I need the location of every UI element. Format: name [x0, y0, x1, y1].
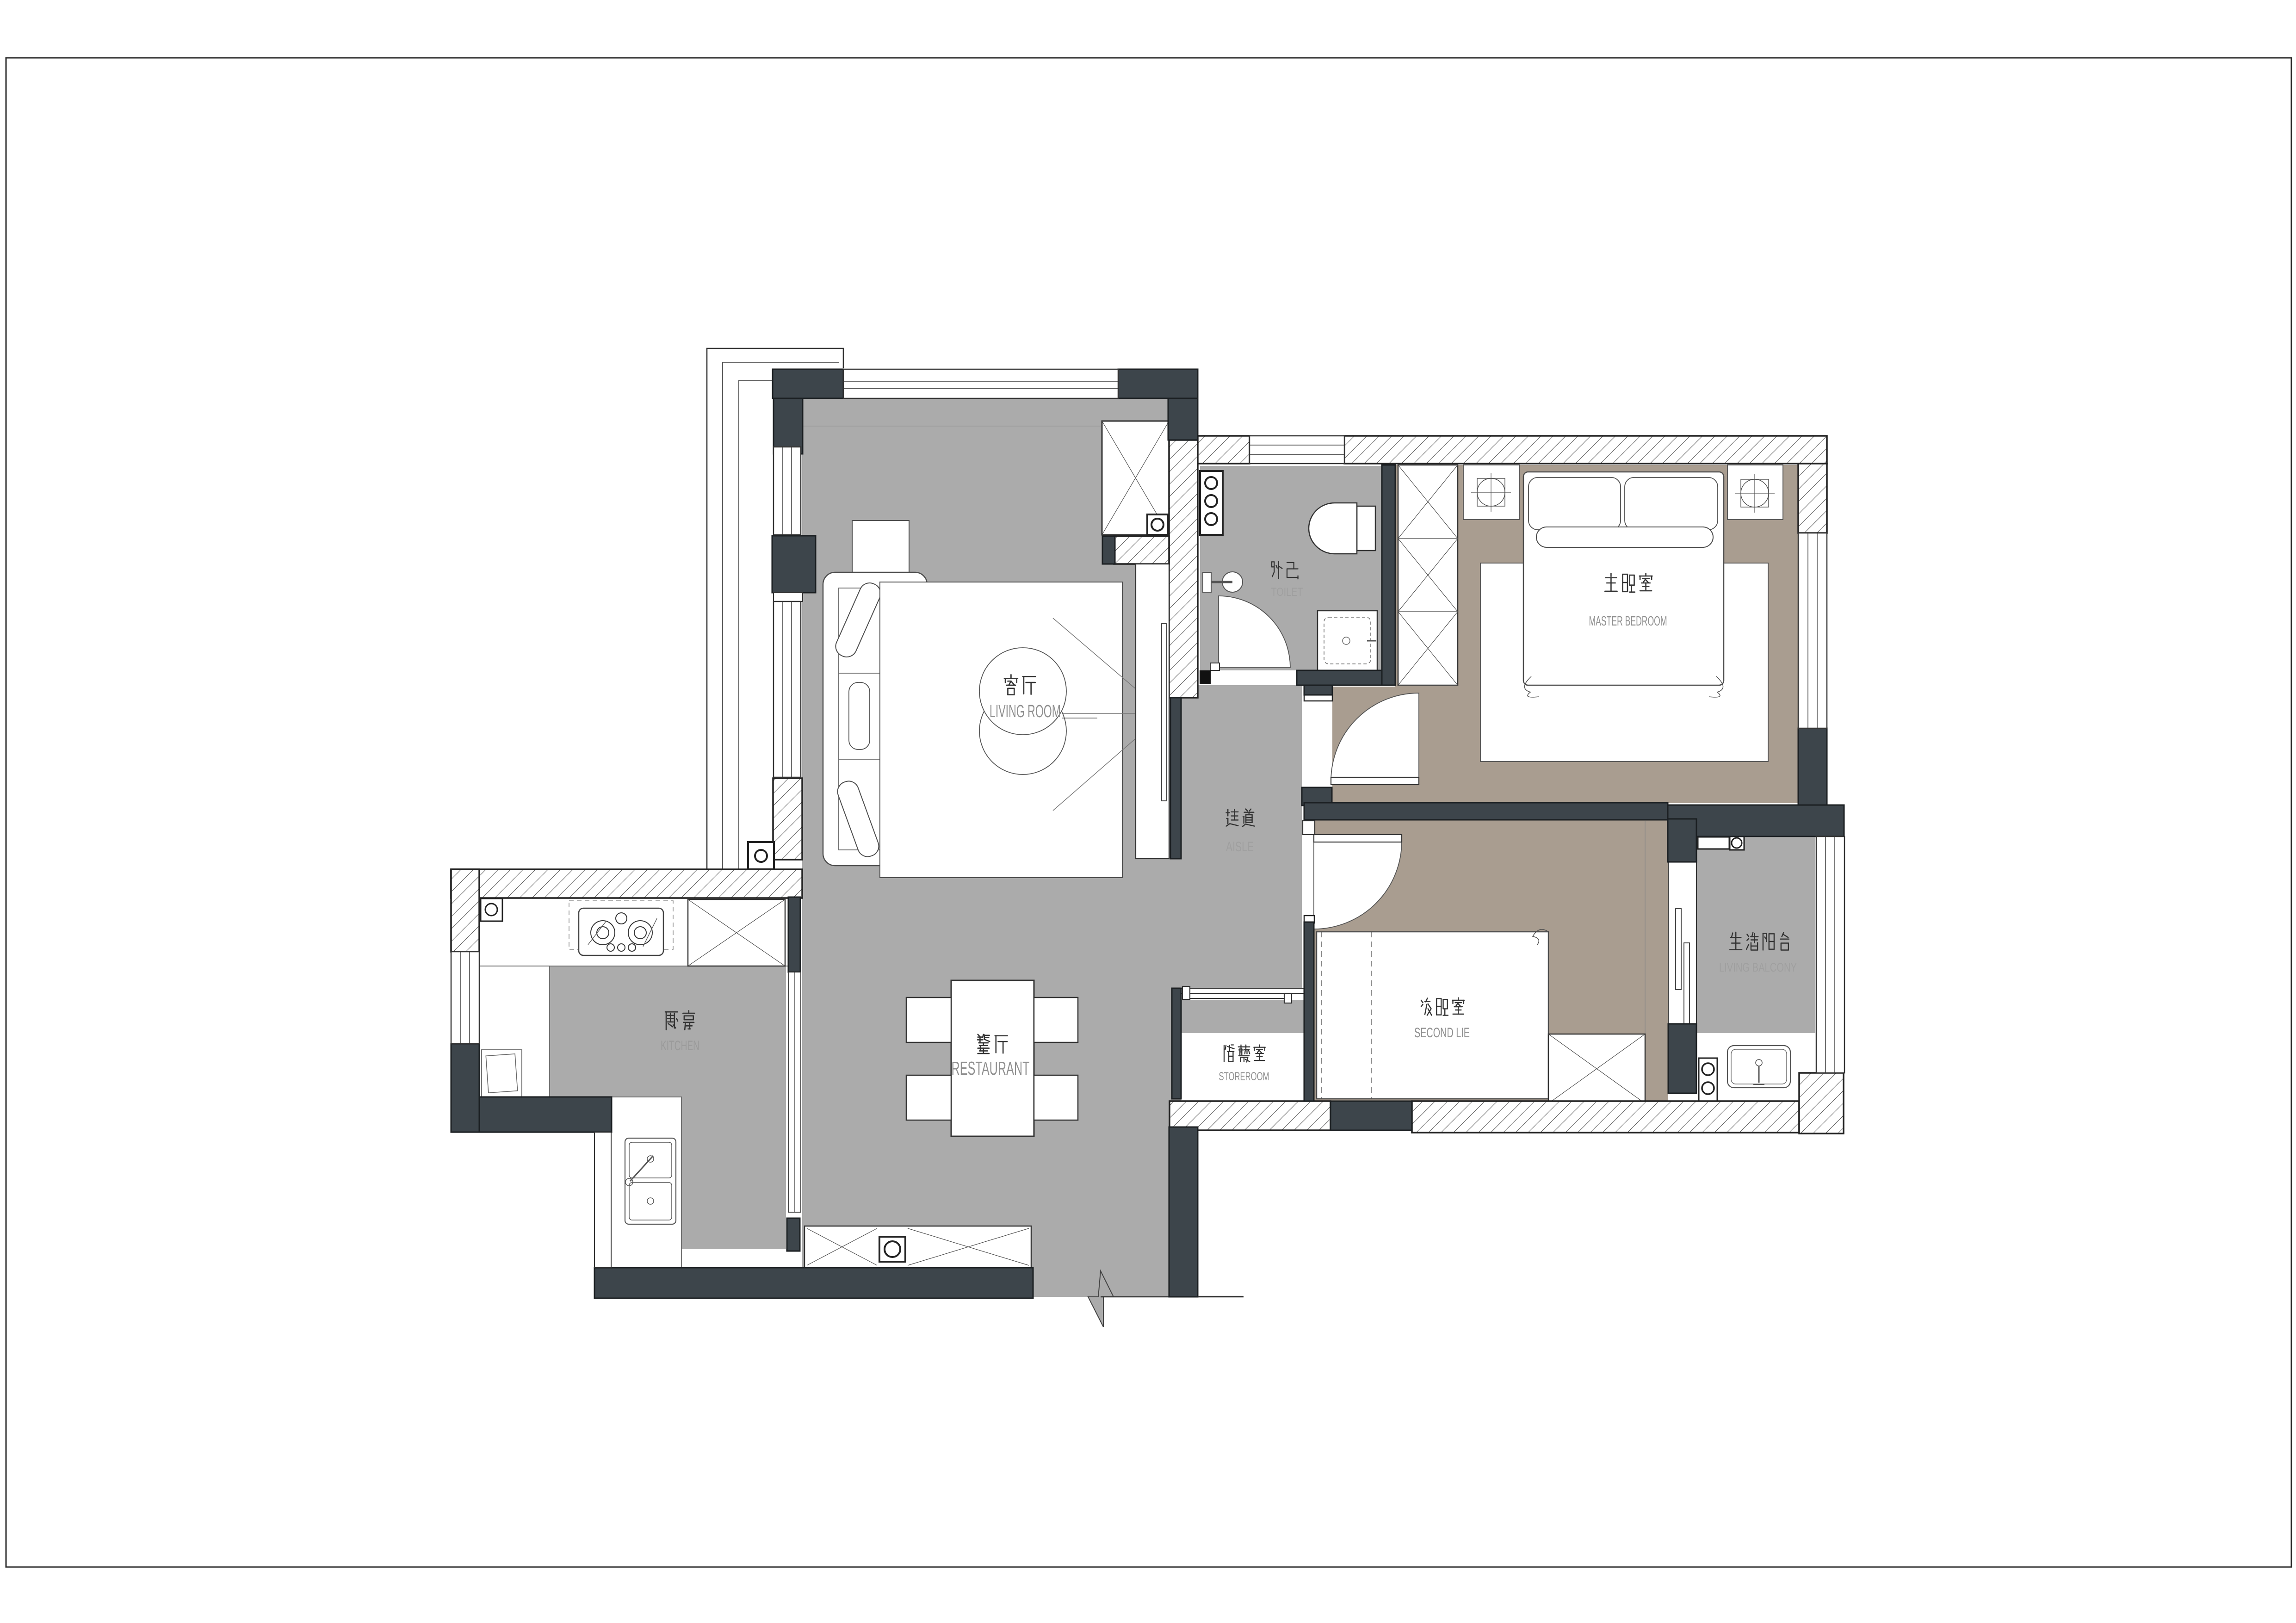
svg-text:RESTAURANT: RESTAURANT [952, 1058, 1030, 1079]
svg-text:STOREROOM: STOREROOM [1219, 1070, 1269, 1083]
svg-text:MASTER BEDROOM: MASTER BEDROOM [1589, 614, 1667, 629]
svg-text:LIVING ROOM: LIVING ROOM [990, 702, 1061, 721]
svg-text:KITCHEN: KITCHEN [661, 1038, 699, 1053]
svg-text:LIVING BALCONY: LIVING BALCONY [1719, 960, 1797, 974]
svg-text:TOILET: TOILET [1271, 586, 1303, 599]
svg-text:AISLE: AISLE [1226, 839, 1254, 855]
svg-text:SECOND LIE: SECOND LIE [1414, 1025, 1470, 1041]
